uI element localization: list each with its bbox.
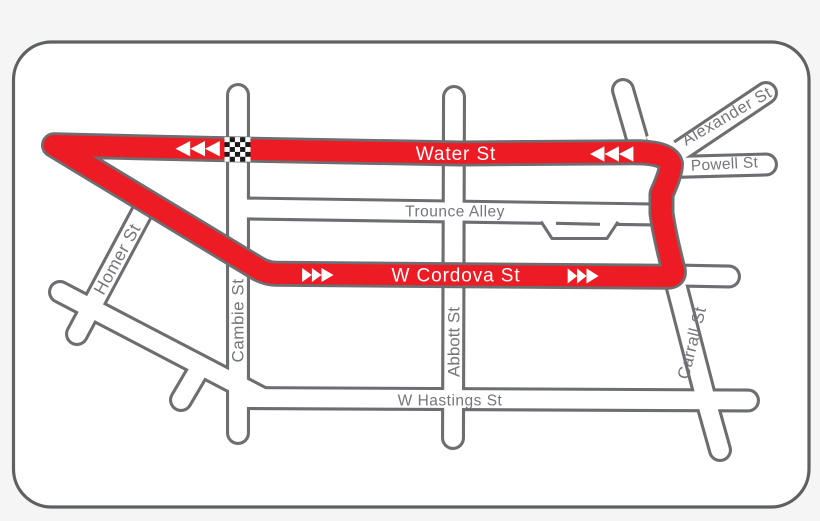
svg-text:W Hastings St: W Hastings St [398, 392, 503, 409]
svg-text:Trounce Alley: Trounce Alley [405, 204, 505, 221]
svg-text:Water St: Water St [416, 144, 496, 165]
svg-text:W Cordova St: W Cordova St [391, 265, 520, 286]
svg-text:Abbott St: Abbott St [445, 307, 464, 377]
svg-text:Cambie St: Cambie St [229, 279, 248, 363]
svg-text:Powell St: Powell St [690, 154, 759, 175]
